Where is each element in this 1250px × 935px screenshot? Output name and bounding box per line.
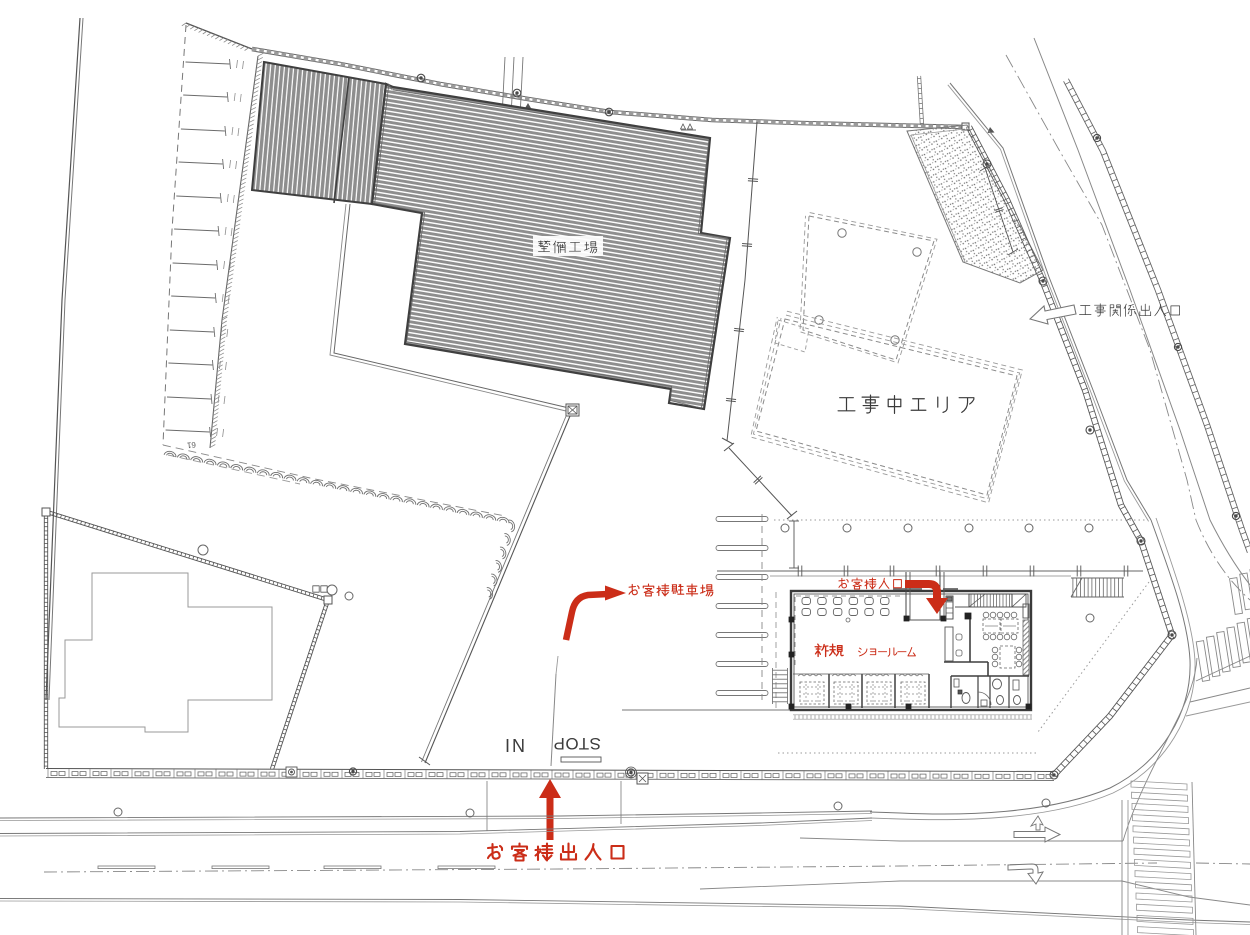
svg-text:61: 61 xyxy=(186,440,196,450)
svg-text:IN: IN xyxy=(505,736,527,756)
svg-text:STOP: STOP xyxy=(553,734,601,753)
